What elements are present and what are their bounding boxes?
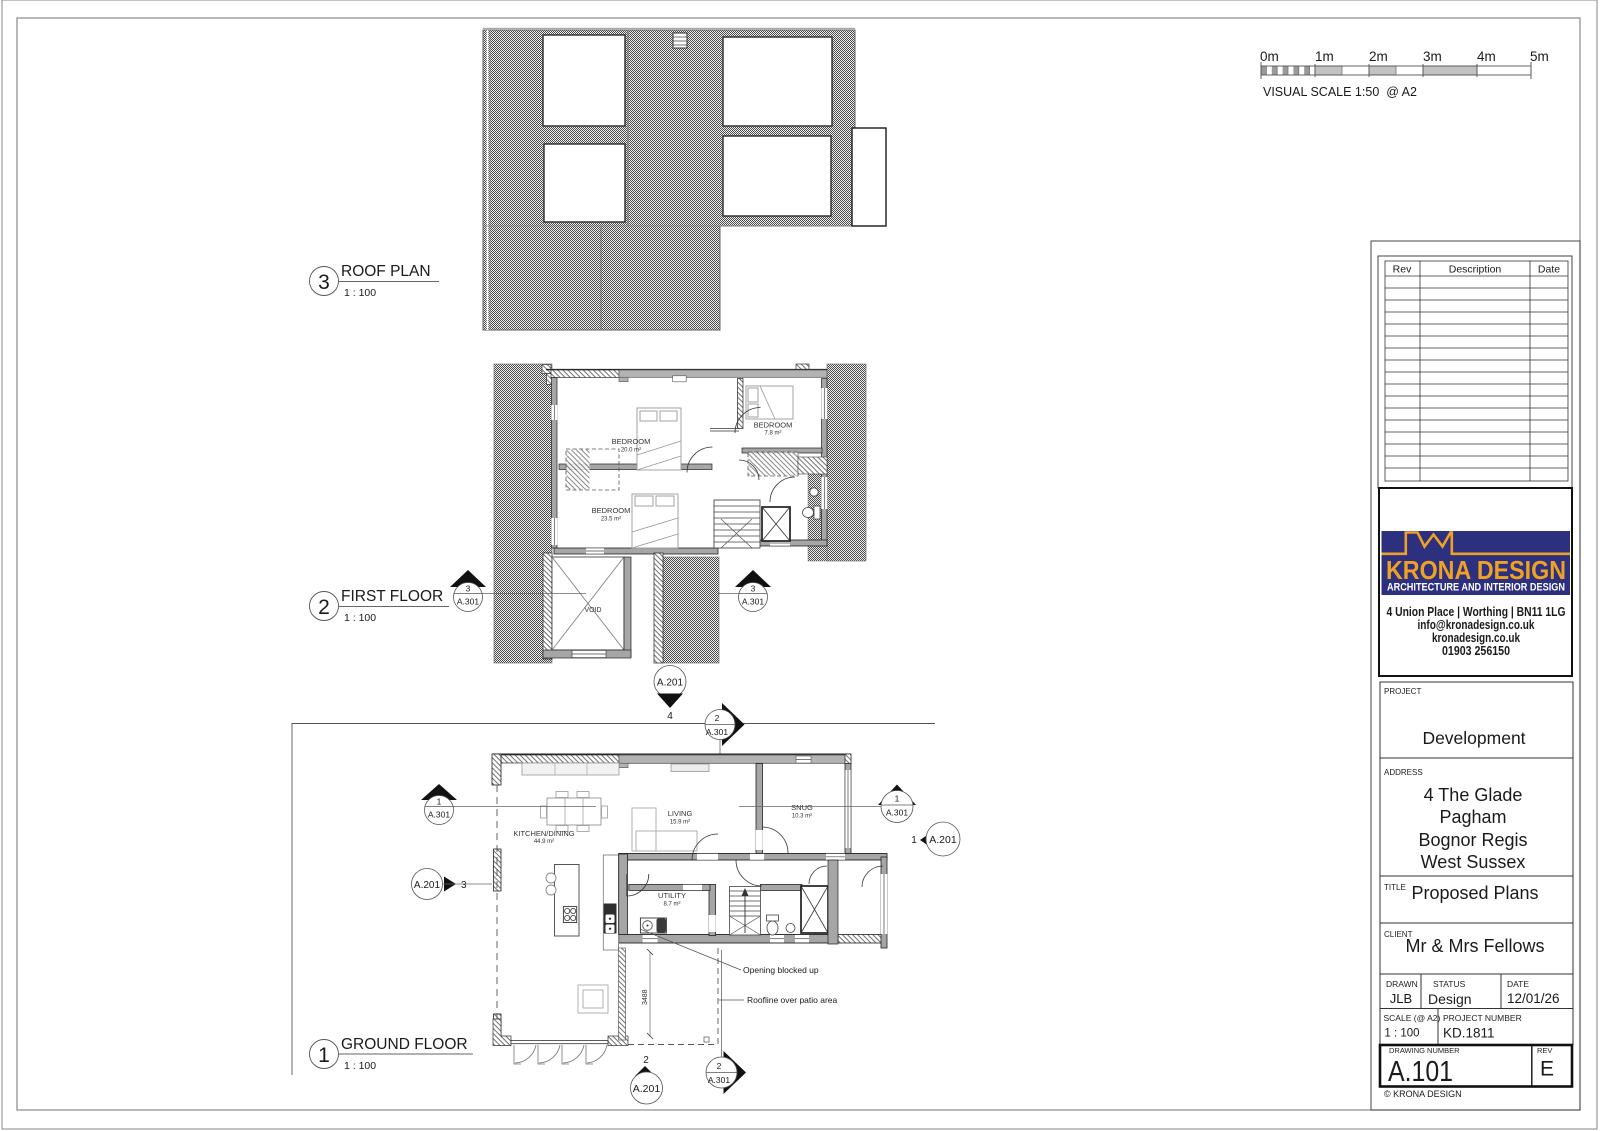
svg-text:3488: 3488 (642, 989, 649, 1005)
svg-text:12/01/26: 12/01/26 (1507, 991, 1560, 1006)
svg-text:23.5 m²: 23.5 m² (601, 517, 621, 523)
svg-text:1 : 100: 1 : 100 (344, 1060, 376, 1072)
svg-text:West Sussex: West Sussex (1421, 852, 1526, 872)
svg-text:Description: Description (1449, 264, 1502, 276)
svg-text:20.0 m²: 20.0 m² (621, 448, 641, 454)
svg-text:REV: REV (1537, 1046, 1552, 1055)
svg-text:E: E (1540, 1058, 1554, 1081)
svg-text:VOID: VOID (584, 607, 601, 614)
svg-text:KITCHEN/DINING: KITCHEN/DINING (513, 829, 574, 838)
svg-text:© KRONA DESIGN: © KRONA DESIGN (1384, 1089, 1462, 1099)
svg-text:2: 2 (717, 1061, 722, 1071)
svg-text:BEDROOM: BEDROOM (592, 506, 631, 515)
svg-text:DRAWN: DRAWN (1386, 979, 1418, 989)
svg-text:2: 2 (643, 1055, 649, 1066)
svg-text:4m: 4m (1477, 49, 1496, 64)
svg-text:STATUS: STATUS (1433, 979, 1466, 989)
svg-text:4 The Glade: 4 The Glade (1424, 785, 1523, 805)
svg-text:JLB: JLB (1390, 991, 1412, 1006)
svg-text:kronadesign.co.uk: kronadesign.co.uk (1432, 631, 1520, 645)
svg-text:Rev: Rev (1393, 264, 1412, 276)
svg-text:4: 4 (667, 711, 673, 722)
svg-text:info@kronadesign.co.uk: info@kronadesign.co.uk (1418, 618, 1535, 632)
svg-text:BEDROOM: BEDROOM (612, 437, 651, 446)
svg-text:LIVING: LIVING (668, 809, 693, 818)
svg-text:3: 3 (461, 880, 467, 891)
svg-text:A.301: A.301 (708, 1075, 730, 1085)
svg-text:BEDROOM: BEDROOM (754, 421, 793, 430)
svg-text:3m: 3m (1423, 49, 1442, 64)
svg-text:FIRST FLOOR: FIRST FLOOR (341, 588, 443, 605)
svg-text:Proposed Plans: Proposed Plans (1411, 883, 1538, 903)
svg-text:UTILITY: UTILITY (658, 891, 686, 900)
svg-text:A.301: A.301 (428, 810, 450, 820)
svg-text:1 : 100: 1 : 100 (344, 612, 376, 624)
svg-text:SCALE (@ A2): SCALE (@ A2) (1384, 1013, 1441, 1023)
svg-text:VISUAL SCALE 1:50 @ A2: VISUAL SCALE 1:50 @ A2 (1263, 85, 1417, 99)
svg-text:10.3 m²: 10.3 m² (792, 814, 812, 820)
svg-text:2: 2 (715, 713, 720, 723)
svg-text:GROUND FLOOR: GROUND FLOOR (341, 1036, 468, 1053)
svg-text:2m: 2m (1369, 49, 1388, 64)
svg-text:TITLE: TITLE (1384, 883, 1406, 892)
svg-text:A.301: A.301 (886, 808, 908, 818)
svg-text:2: 2 (318, 596, 330, 619)
svg-text:A.101: A.101 (1388, 1056, 1453, 1088)
svg-text:Design: Design (1428, 991, 1472, 1007)
svg-text:ROOF PLAN: ROOF PLAN (341, 263, 431, 280)
svg-text:A.201: A.201 (657, 678, 684, 689)
svg-text:Pagham: Pagham (1439, 807, 1506, 827)
svg-text:Development: Development (1422, 728, 1525, 748)
svg-text:3: 3 (318, 271, 330, 294)
svg-text:1: 1 (437, 797, 442, 807)
svg-text:7.8 m²: 7.8 m² (764, 431, 781, 437)
svg-text:01903 256150: 01903 256150 (1442, 644, 1510, 658)
svg-text:Opening blocked up: Opening blocked up (743, 965, 819, 975)
svg-text:A.201: A.201 (633, 1083, 661, 1095)
svg-text:1m: 1m (1315, 49, 1334, 64)
svg-text:8.7 m²: 8.7 m² (663, 902, 680, 908)
svg-text:4 Union Place | Worthing | BN1: 4 Union Place | Worthing | BN11 1LG (1387, 605, 1566, 619)
svg-text:Bognor Regis: Bognor Regis (1418, 830, 1527, 850)
svg-text:KRONA DESIGN: KRONA DESIGN (1386, 555, 1566, 585)
svg-text:A.201: A.201 (414, 880, 441, 891)
svg-text:ARCHITECTURE AND INTERIOR DESI: ARCHITECTURE AND INTERIOR DESIGN (1387, 582, 1565, 594)
svg-text:44.9 m²: 44.9 m² (534, 839, 554, 845)
svg-text:KD.1811: KD.1811 (1443, 1026, 1495, 1041)
svg-text:1: 1 (318, 1044, 330, 1067)
svg-text:DRAWING NUMBER: DRAWING NUMBER (1389, 1046, 1460, 1055)
svg-text:15.9 m²: 15.9 m² (670, 820, 690, 826)
svg-text:3: 3 (751, 584, 756, 594)
svg-text:5m: 5m (1530, 49, 1549, 64)
svg-text:ADDRESS: ADDRESS (1384, 768, 1423, 777)
svg-text:DATE: DATE (1507, 979, 1529, 989)
svg-text:PROJECT: PROJECT (1384, 687, 1421, 696)
svg-text:SNUG: SNUG (791, 803, 813, 812)
svg-text:A.201: A.201 (929, 834, 957, 846)
svg-text:1 : 100: 1 : 100 (344, 287, 376, 299)
svg-text:Roofline over patio area: Roofline over patio area (747, 995, 838, 1005)
svg-text:1: 1 (895, 794, 900, 804)
svg-text:PROJECT NUMBER: PROJECT NUMBER (1443, 1013, 1522, 1023)
svg-text:1 : 100: 1 : 100 (1384, 1028, 1419, 1040)
svg-text:3: 3 (466, 584, 471, 594)
svg-text:A.301: A.301 (457, 597, 479, 607)
svg-text:1: 1 (911, 835, 917, 846)
svg-text:A.301: A.301 (706, 727, 728, 737)
svg-text:Mr & Mrs Fellows: Mr & Mrs Fellows (1406, 936, 1545, 956)
svg-text:A.301: A.301 (742, 597, 764, 607)
svg-text:Date: Date (1538, 264, 1560, 276)
svg-text:0m: 0m (1260, 49, 1279, 64)
